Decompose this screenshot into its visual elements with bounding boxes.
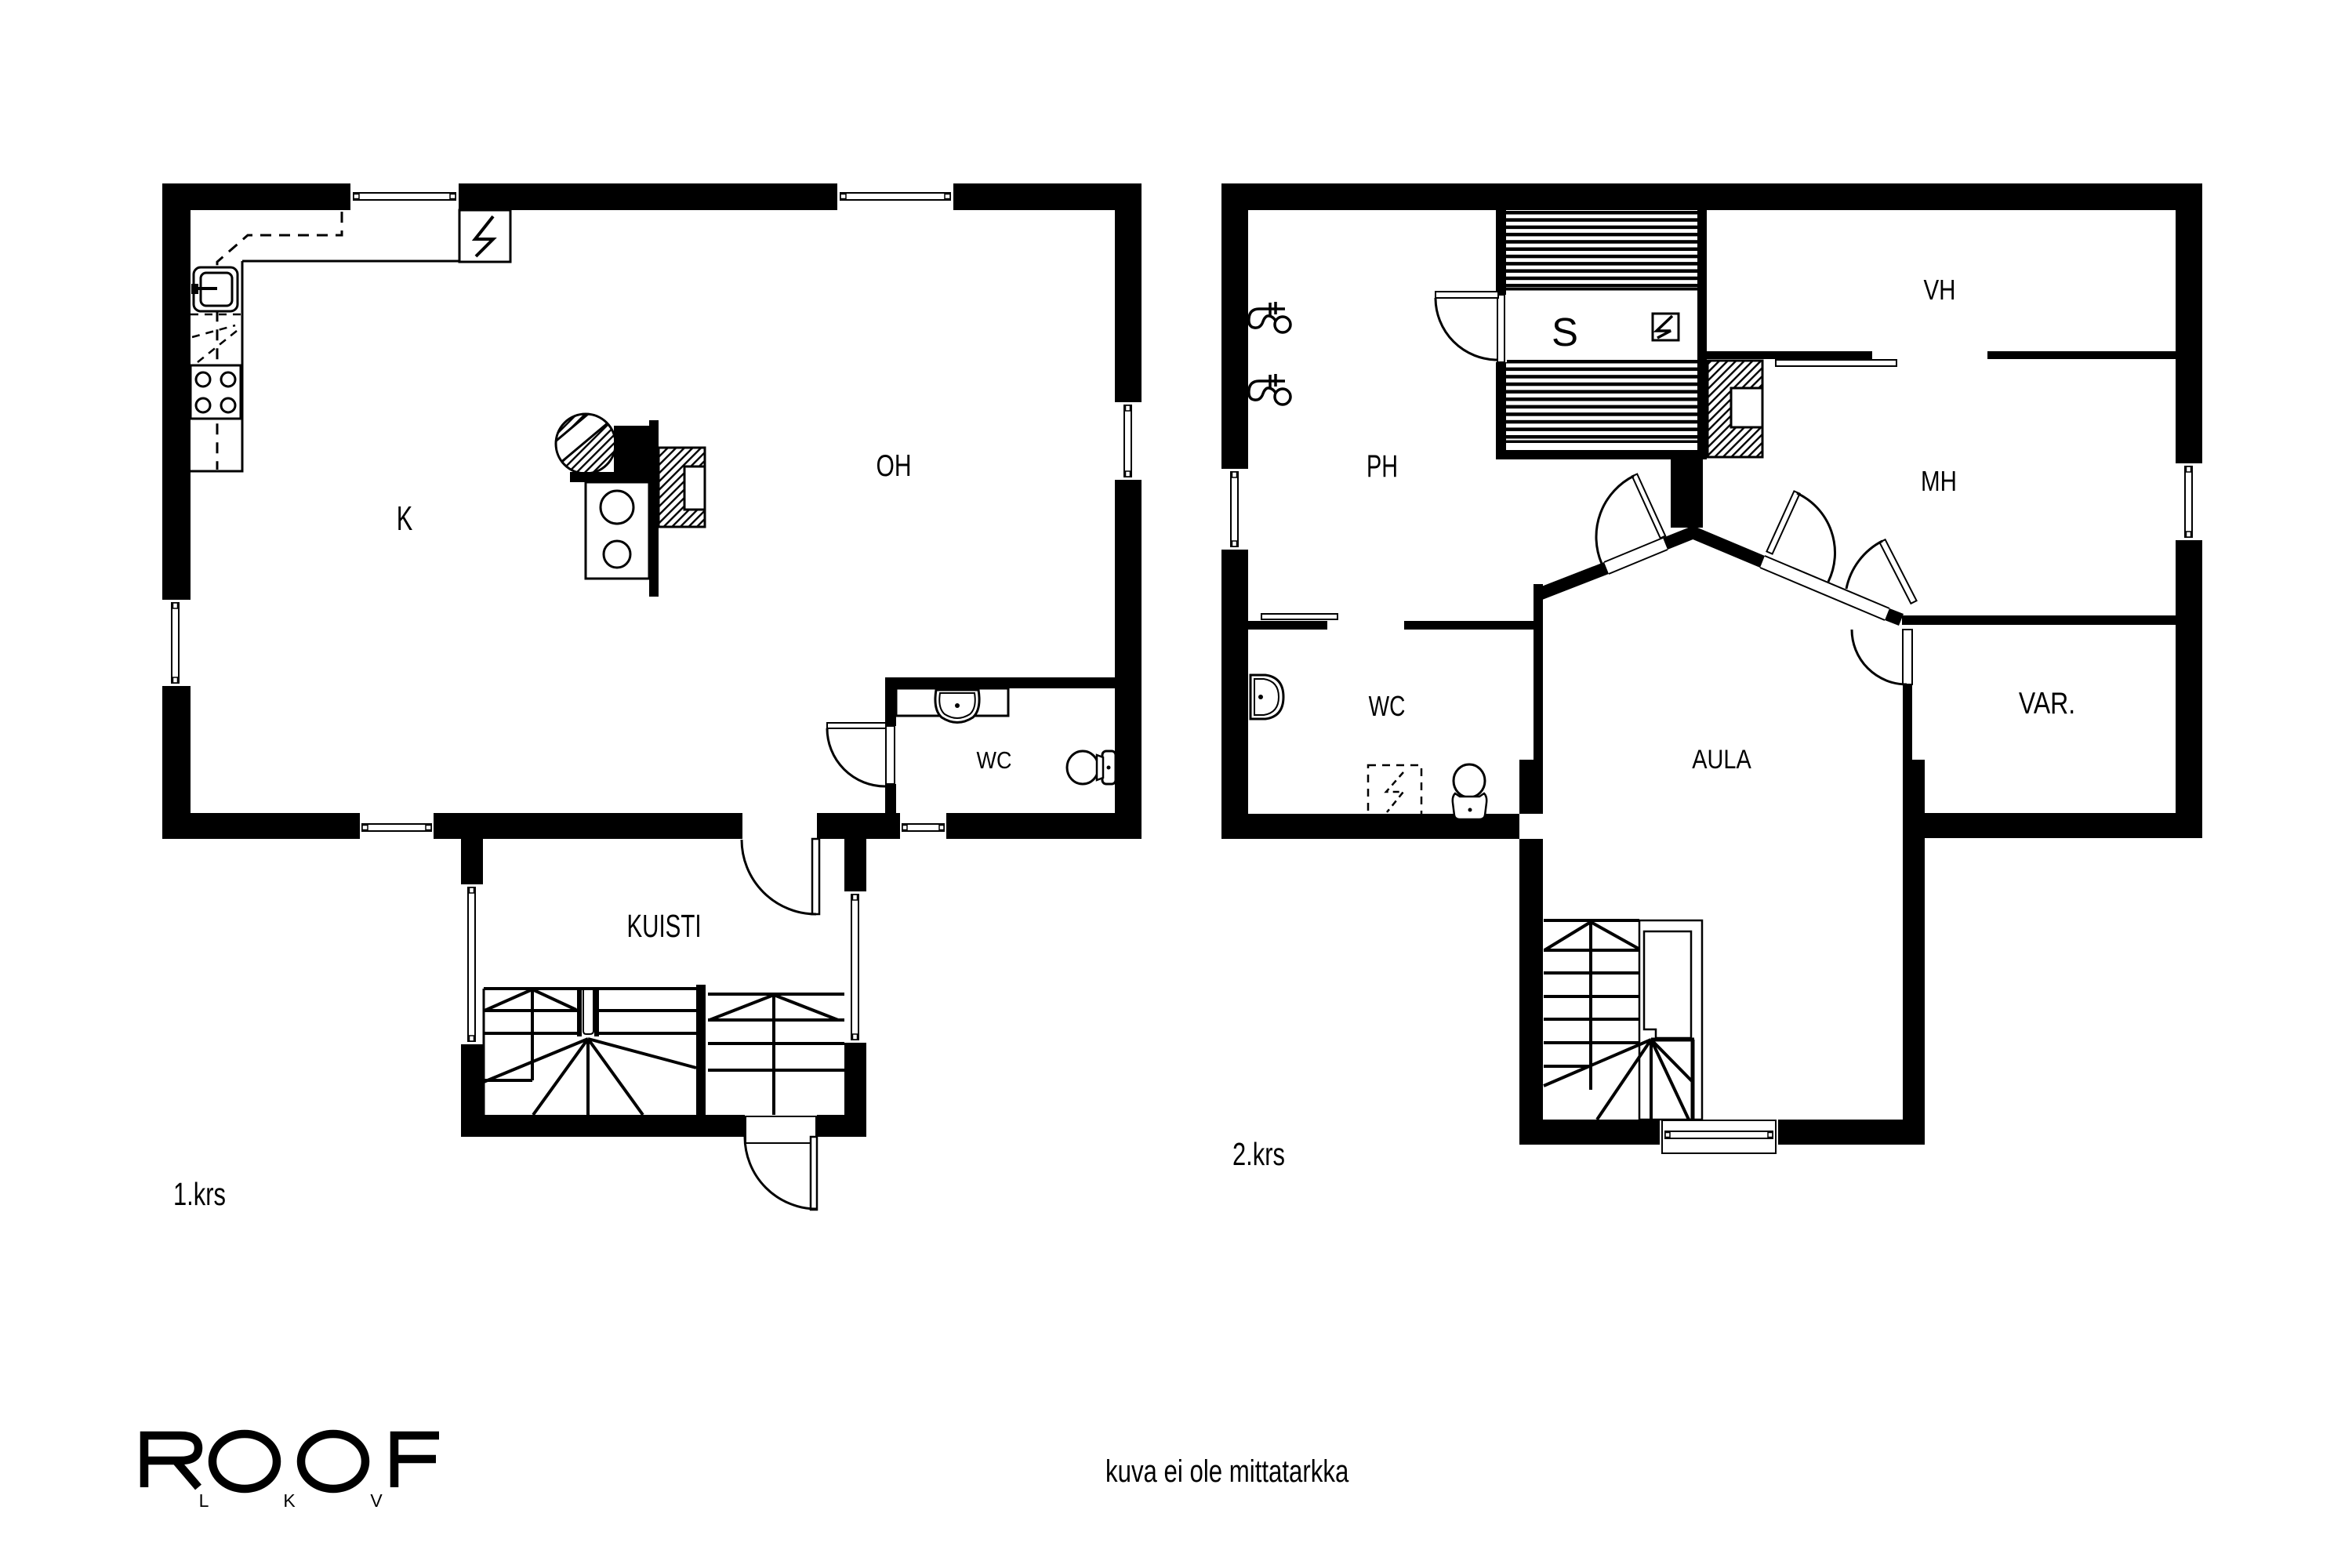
svg-text:VAR.: VAR. [2019, 686, 2075, 720]
svg-text:AULA: AULA [1692, 744, 1751, 775]
svg-text:K: K [283, 1490, 296, 1511]
svg-text:2.krs: 2.krs [1232, 1136, 1285, 1172]
svg-text:OH: OH [876, 448, 911, 483]
svg-text:PH: PH [1367, 448, 1398, 484]
svg-text:kuva ei ole mittatarkka: kuva ei ole mittatarkka [1105, 1454, 1348, 1489]
svg-text:1.krs: 1.krs [173, 1176, 226, 1212]
svg-text:K: K [397, 500, 413, 539]
svg-text:WC: WC [977, 747, 1012, 774]
svg-text:MH: MH [1921, 465, 1957, 496]
svg-text:S: S [1552, 310, 1578, 354]
svg-text:VH: VH [1924, 274, 1956, 305]
svg-text:V: V [370, 1490, 383, 1511]
svg-text:WC: WC [1369, 691, 1406, 722]
svg-text:L: L [199, 1490, 209, 1511]
svg-text:KUISTI: KUISTI [626, 908, 701, 944]
